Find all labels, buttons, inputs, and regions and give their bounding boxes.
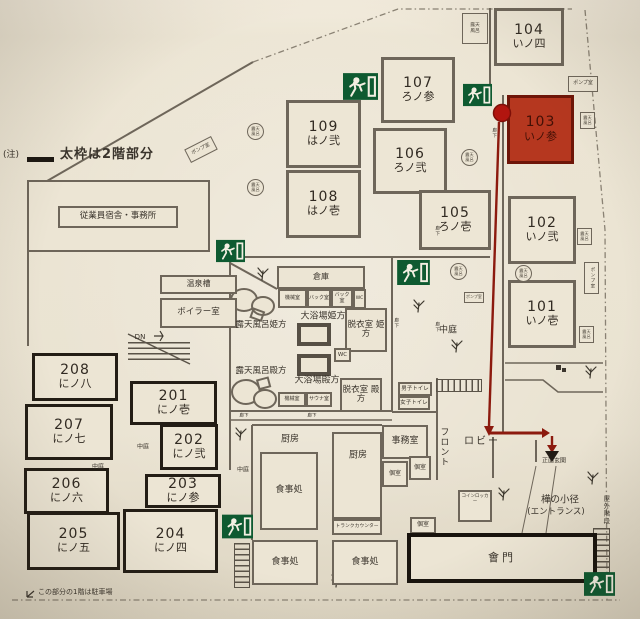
exit-sign-icon	[222, 514, 253, 539]
back-room: バック室	[331, 289, 353, 308]
kitchen-label: 厨房	[281, 435, 299, 446]
womens-toilet: 女子トイレ	[398, 396, 430, 410]
lobby-label: ロビー	[464, 436, 500, 448]
open-air-bath-badge: 露天 風呂	[577, 228, 592, 245]
pump-room: ポンプ室	[568, 76, 598, 92]
courtyard-label: 中庭	[439, 326, 457, 337]
note-text: 太枠は2階部分	[60, 147, 154, 163]
corridor-label: 廊下	[434, 322, 439, 333]
front-desk-label: フロント	[438, 427, 449, 467]
onsen-tank: 温泉槽	[160, 275, 237, 294]
office-room: 事務室	[382, 425, 428, 459]
room-204: 204 にノ四	[123, 509, 218, 573]
bath-hime-label: 大浴場姫方	[300, 312, 345, 323]
room-206: 206 にノ六	[24, 468, 109, 514]
open-air-bath-badge: 露天 風呂	[580, 112, 595, 129]
room-103-highlighted: 103 いノ参	[507, 95, 574, 164]
plant-icon	[414, 300, 424, 312]
room-106: 106 ろノ弐	[373, 128, 447, 194]
dining-room: 食事処	[260, 452, 318, 530]
exit-sign-icon	[463, 82, 492, 108]
parking-arrow	[27, 591, 34, 597]
open-bath-hime-label: 露天風呂姫方	[235, 320, 286, 330]
ryokan-floor-map: (注) 太枠は2階部分 従業員宿舎・事務所 温泉槽 ボイラー室 DN 104 い…	[0, 0, 640, 619]
room-107: 107 ろノ参	[381, 57, 455, 123]
room-203: 203 にノ参	[145, 474, 221, 508]
machine-room: 機械室	[278, 289, 307, 308]
open-air-bath-badge: 露天 風呂	[461, 149, 478, 166]
entrance-path-edge	[522, 466, 536, 533]
plant-icon	[499, 488, 509, 500]
room-105: 105 ろノ壱	[419, 190, 491, 250]
plant-icon	[588, 472, 598, 484]
room-104: 104 いノ四	[494, 8, 564, 66]
room-208: 208 にノ八	[32, 353, 118, 401]
room-207: 207 にノ七	[25, 404, 113, 460]
employee-office-label: 従業員宿舎・事務所	[80, 212, 157, 221]
bath-tono-label: 大浴場殿方	[294, 376, 339, 387]
room-101: 101 いノ壱	[508, 280, 576, 348]
entrance-path-label: 樺の小径	[541, 494, 579, 505]
note-prefix: (注)	[3, 150, 19, 161]
dressing-room-hime: 脱衣室 姫方	[345, 308, 387, 352]
kitchen-label: 厨房	[349, 451, 367, 462]
bath-tub-hime	[297, 323, 331, 346]
room-108: 108 はノ壱	[286, 170, 361, 238]
room-205: 205 にノ五	[27, 512, 120, 570]
open-air-bath-badge: 露天 風呂	[462, 13, 488, 44]
room-102: 102 いノ弐	[508, 196, 576, 264]
dining-room: 食事処	[332, 540, 398, 585]
sauna-room: サウナ室	[306, 392, 332, 407]
private-room: 個室	[382, 461, 408, 487]
open-air-bath-badge: 露天 風呂	[247, 123, 264, 140]
mens-toilet: 男子トイレ	[398, 382, 432, 396]
pump-room: ポンプ室	[584, 262, 599, 294]
rock-icon	[556, 365, 566, 372]
outdoor-stairs-label: 屋外階段	[601, 495, 609, 525]
exit-sign-icon	[395, 260, 432, 285]
courtyard-small-label: 中庭	[92, 463, 104, 470]
pump-room: ポンプ室	[464, 292, 484, 303]
side-stairs-ladder	[234, 543, 250, 588]
open-air-bath-pools	[231, 289, 276, 408]
trunk-counter: トランクカウンター	[332, 519, 382, 535]
open-bath-tono-label: 露天風呂殿方	[235, 366, 286, 376]
room-number: 104	[514, 23, 544, 38]
exit-sign-icon	[343, 73, 378, 100]
bold-line-sample	[27, 157, 54, 162]
stairs-hatch	[436, 379, 482, 392]
machine-room: 機械室	[278, 392, 306, 407]
wc-box: WC	[334, 348, 351, 362]
dn-label: DN	[135, 333, 146, 341]
plant-icon	[236, 428, 246, 440]
kitchen-room	[332, 432, 382, 519]
dn-stairs	[128, 340, 190, 364]
dining-room: 食事処	[252, 540, 318, 585]
exit-sign-icon	[584, 572, 615, 596]
dressing-room-tono: 脱衣室 殿方	[340, 378, 382, 412]
corridor-label: 廊下	[240, 413, 249, 418]
warehouse: 倉庫	[277, 266, 365, 289]
room-202: 202 にノ弐	[160, 424, 218, 470]
open-air-bath-badge: 露天 風呂	[450, 263, 467, 280]
corridor-label: 廊下	[434, 226, 439, 237]
parking-note: この部分の1階は駐車場	[38, 588, 112, 596]
plant-icon	[586, 366, 596, 378]
gate-building: 會門	[407, 533, 597, 583]
entrance-path-sub-label: (エントランス)	[527, 507, 584, 517]
back-room: バック室	[307, 289, 331, 308]
room-109: 109 はノ弐	[286, 100, 361, 168]
corridor-label: 廊下	[308, 413, 317, 418]
room-name: いノ四	[513, 38, 546, 51]
garden-wall	[505, 380, 603, 392]
courtyard-small-label: 中庭	[237, 466, 249, 473]
wall	[230, 263, 277, 289]
boiler-room: ボイラー室	[160, 298, 237, 328]
private-room: 個室	[409, 456, 431, 480]
plant-icon	[452, 340, 462, 352]
bath-tub-tono	[297, 354, 331, 376]
open-air-bath-badge: 露天 風呂	[247, 179, 264, 196]
corridor-label: 廊下	[393, 318, 398, 329]
boundary-line	[28, 62, 253, 192]
corridor-label: 廊下	[491, 128, 496, 139]
courtyard-small-label: 中庭	[137, 443, 149, 450]
main-entrance-label: 正面玄関	[542, 457, 566, 464]
coin-locker: コインロッカー	[458, 490, 492, 522]
open-air-bath-badge: 露天 風呂	[515, 265, 532, 282]
exit-sign-icon	[216, 239, 245, 263]
open-air-bath-badge: 露天 風呂	[579, 326, 594, 343]
employee-office-label-box: 従業員宿舎・事務所	[58, 206, 178, 228]
wc-box: WC	[353, 289, 366, 309]
private-room: 個室	[410, 517, 436, 534]
room-201: 201 にノ壱	[130, 381, 217, 425]
